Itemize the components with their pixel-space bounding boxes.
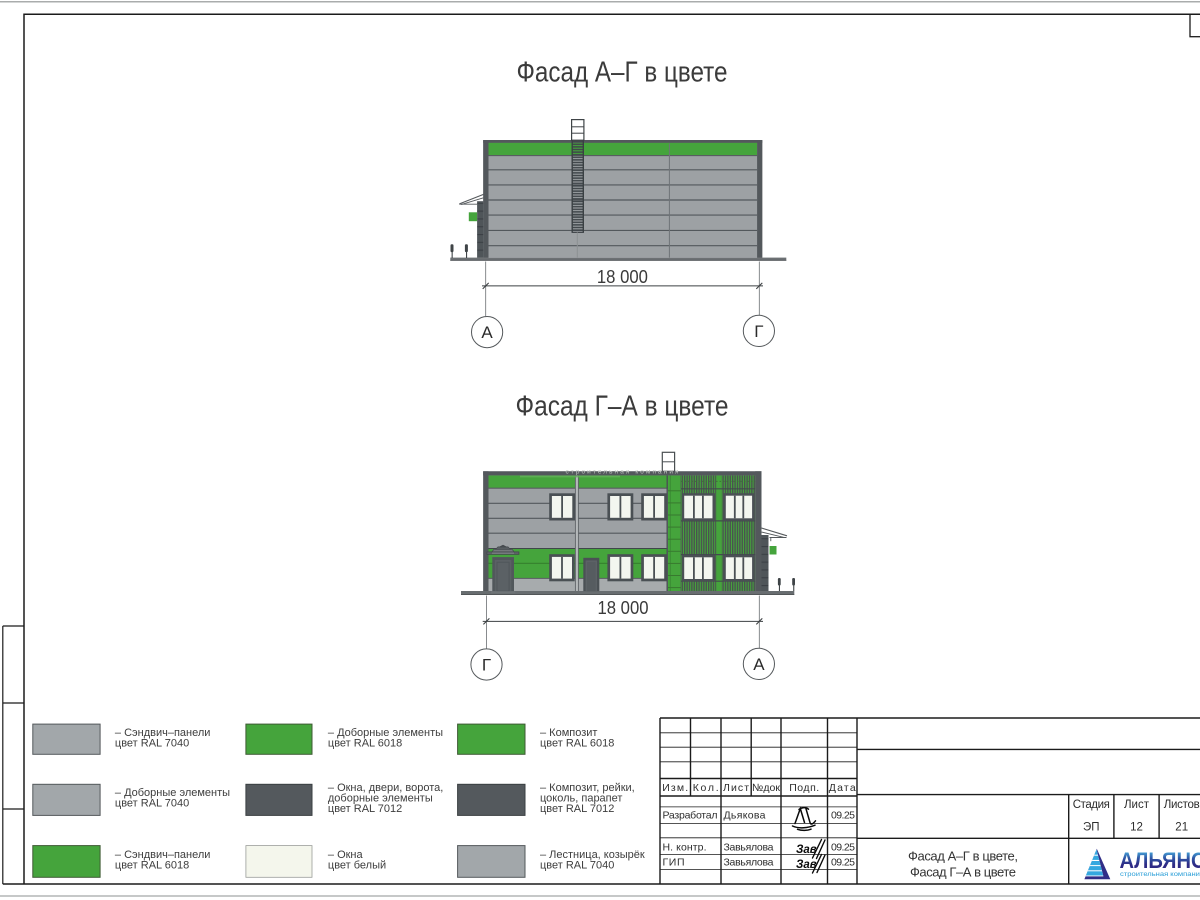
svg-text:Дьякова: Дьякова xyxy=(724,810,766,822)
svg-text:ЭП: ЭП xyxy=(1083,822,1100,834)
svg-text:цвет RAL 7040: цвет RAL 7040 xyxy=(540,860,614,872)
svg-text:ГИП: ГИП xyxy=(663,857,685,869)
svg-text:21: 21 xyxy=(1175,822,1188,834)
svg-text:цвет RAL 6018: цвет RAL 6018 xyxy=(540,737,614,749)
svg-text:Листов: Листов xyxy=(1164,799,1200,811)
svg-text:А: А xyxy=(753,655,765,674)
svg-text:18 000: 18 000 xyxy=(598,597,649,618)
svg-text:09.25: 09.25 xyxy=(831,810,855,822)
svg-text:12: 12 xyxy=(1130,822,1143,834)
svg-text:цвет RAL 6018: цвет RAL 6018 xyxy=(328,737,402,749)
svg-text:Лист: Лист xyxy=(1124,799,1150,811)
svg-text:цвет RAL 7040: цвет RAL 7040 xyxy=(115,737,189,749)
svg-text:цвет RAL 7012: цвет RAL 7012 xyxy=(328,803,402,815)
svg-text:Н. контр.: Н. контр. xyxy=(663,841,707,853)
svg-text:№док: №док xyxy=(752,782,780,794)
svg-text:09.25: 09.25 xyxy=(831,857,855,869)
svg-text:Лист: Лист xyxy=(723,782,749,794)
svg-text:цвет белый: цвет белый xyxy=(328,860,386,872)
svg-text:Г: Г xyxy=(754,322,763,341)
svg-text:Г: Г xyxy=(482,655,491,674)
svg-text:А: А xyxy=(481,323,493,342)
svg-text:Фасад А–Г в цвете,: Фасад А–Г в цвете, xyxy=(908,848,1018,863)
svg-text:Разработал: Разработал xyxy=(663,810,718,822)
svg-text:18 000: 18 000 xyxy=(597,266,648,287)
svg-text:строительная компания: строительная компания xyxy=(1120,871,1200,878)
svg-text:Завьялова: Завьялова xyxy=(724,841,774,853)
svg-text:цвет RAL 7040: цвет RAL 7040 xyxy=(115,798,189,810)
svg-text:Фасад А–Г в цвете: Фасад А–Г в цвете xyxy=(517,56,728,88)
svg-text:Стадия: Стадия xyxy=(1073,799,1110,811)
svg-text:Подп.: Подп. xyxy=(789,782,819,794)
svg-text:Фасад Г–А в цвете: Фасад Г–А в цвете xyxy=(516,390,729,422)
svg-text:АЛЬЯНС: АЛЬЯНС xyxy=(1120,848,1200,873)
svg-text:09.25: 09.25 xyxy=(831,841,855,853)
svg-text:цвет RAL 7012: цвет RAL 7012 xyxy=(540,803,614,815)
svg-text:Завьялова: Завьялова xyxy=(724,857,774,869)
svg-text:Фасад Г–А в цвете: Фасад Г–А в цвете xyxy=(910,864,1016,879)
svg-text:Кол.: Кол. xyxy=(693,782,719,794)
svg-text:Изм.: Изм. xyxy=(662,782,688,794)
svg-text:цвет RAL 6018: цвет RAL 6018 xyxy=(115,860,189,872)
svg-text:Дата: Дата xyxy=(829,782,856,794)
